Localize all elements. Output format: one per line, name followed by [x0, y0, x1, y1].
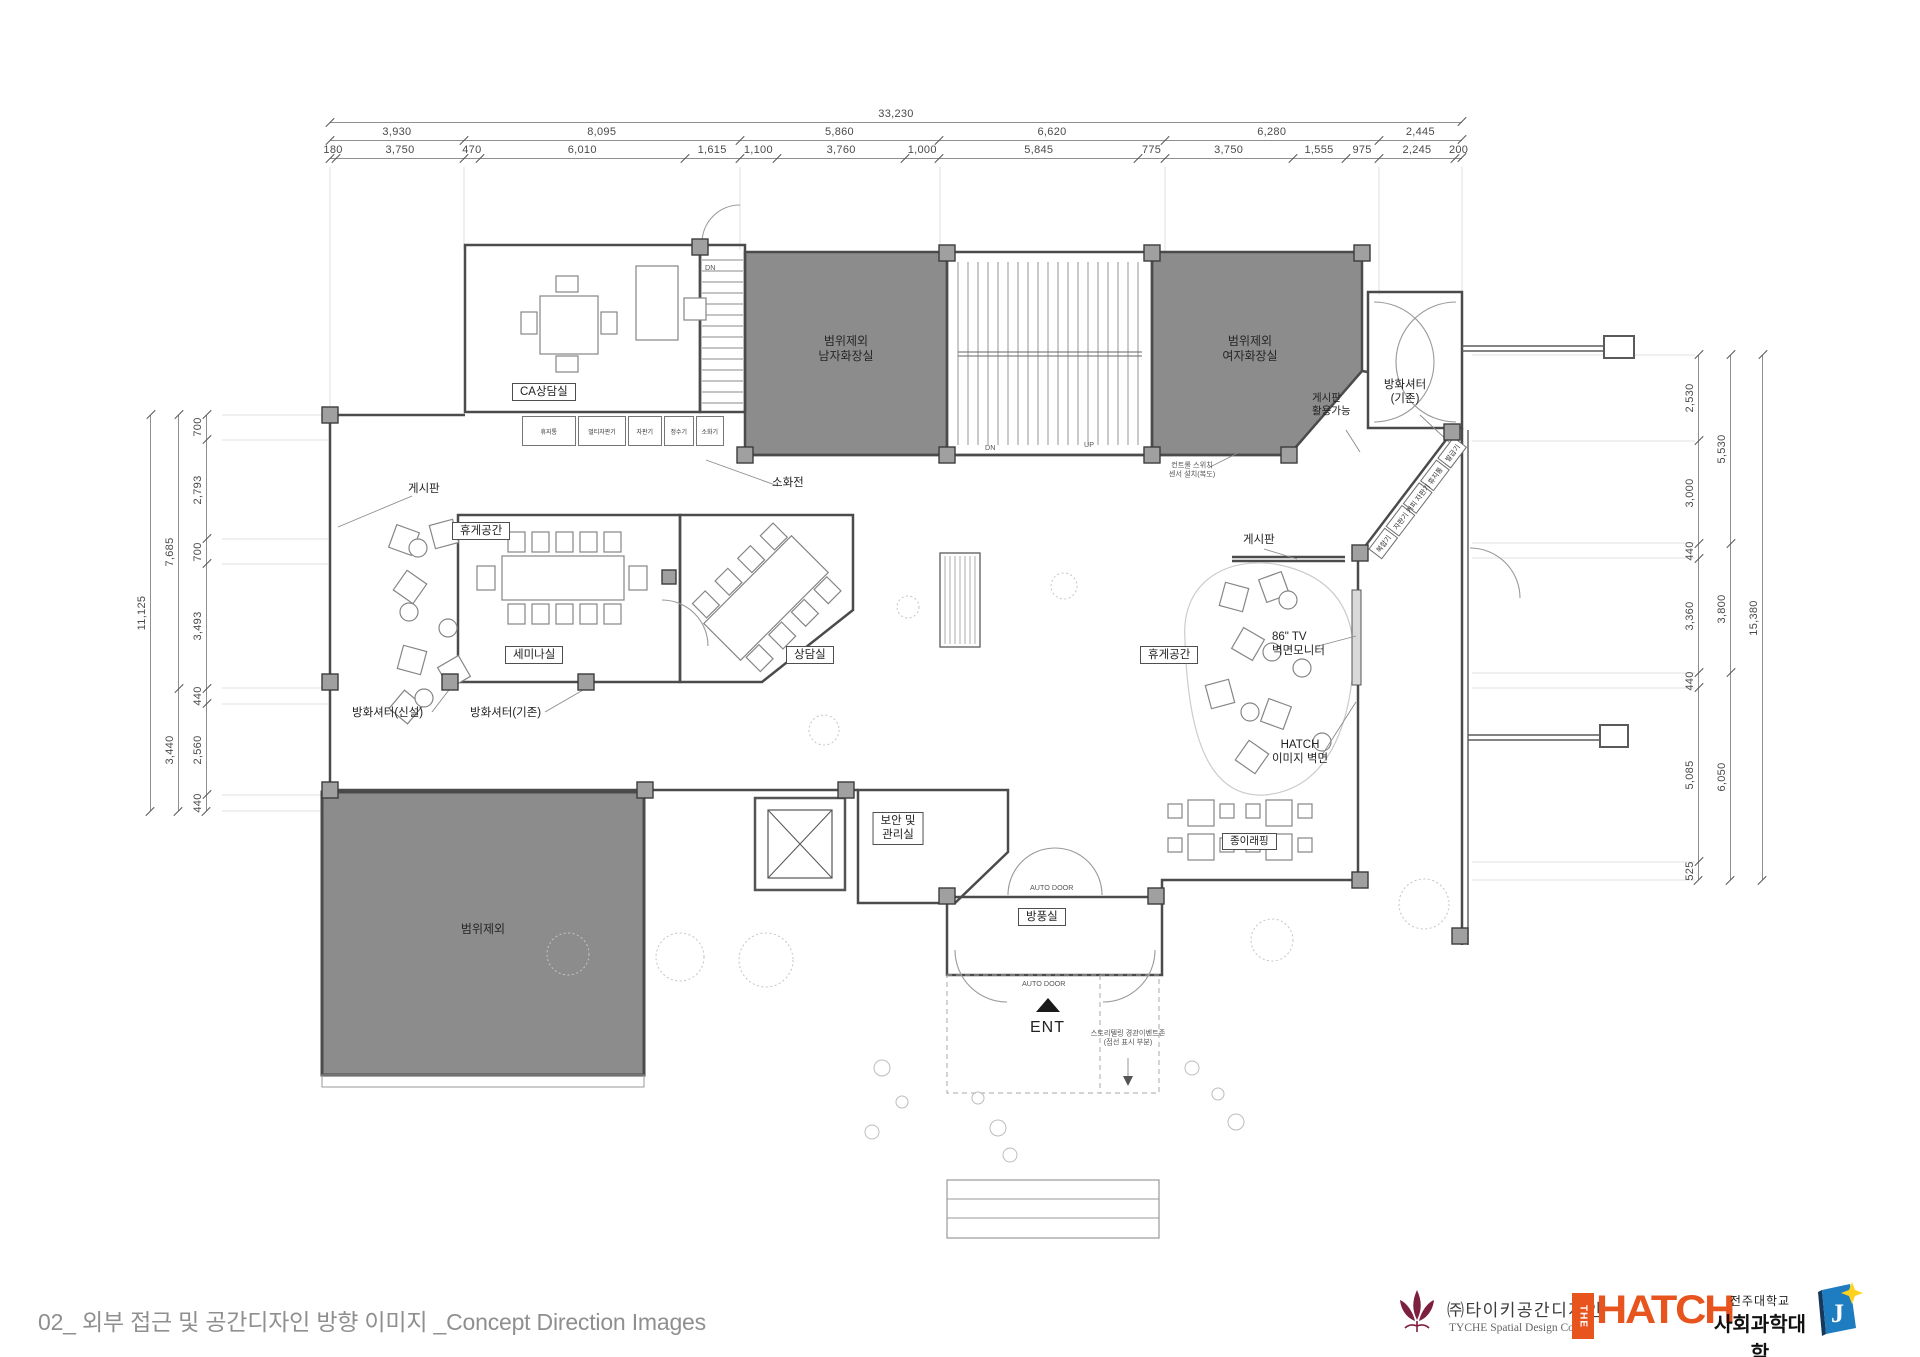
tyche-logo-icon: [1400, 1290, 1434, 1332]
label-control-switch: 컨트롤 스위치 센서 설치(복도): [1169, 462, 1216, 480]
excluded-zones: [322, 252, 1362, 1087]
appliance-box-extinguisher: 소화기: [696, 416, 724, 446]
dimension-value: 3,440: [164, 735, 176, 764]
appliance-label: 정수기: [671, 427, 688, 436]
dimension-segment: 3,800: [1730, 544, 1731, 674]
dimension-value: 5,085: [1684, 761, 1696, 790]
dimension-segment: 3,440: [178, 689, 179, 811]
dimension-value: 6,010: [568, 144, 597, 156]
dimension-value: 7,685: [164, 537, 176, 566]
room-label-excluded-big: 범위제외: [461, 922, 505, 937]
dimension-segment: 5,860: [740, 140, 940, 141]
label-tv-wall: 86" TV 벽면모니터: [1272, 630, 1325, 659]
dim-left-middle: 7,6853,440: [178, 415, 179, 811]
dimension-value: 700: [192, 542, 204, 561]
label-fire-shutter-tr: 방화셔터 (기존): [1384, 378, 1426, 407]
dimension-value: 440: [1684, 671, 1696, 690]
label-hatch-wall: HATCH 이미지 벽면: [1272, 738, 1328, 767]
dimension-value: 3,000: [1684, 478, 1696, 507]
hatched-screen: [940, 553, 980, 647]
hatch-logo-the: THE: [1572, 1293, 1594, 1339]
appliance-box-multivend: 멀티자판기: [578, 416, 626, 446]
dimension-value: 1,555: [1305, 144, 1334, 156]
appliance-box-vending: 자판기: [628, 416, 662, 446]
university-flag-icon: J: [1818, 1282, 1863, 1336]
dimension-value: 3,800: [1716, 594, 1728, 623]
dimension-value: 975: [1352, 144, 1371, 156]
appliance-label: 멀티자판기: [588, 427, 616, 436]
dimension-segment: 3,930: [330, 140, 464, 141]
label-fire-shutter-new: 방화셔터(신설): [352, 706, 423, 720]
dimension-segment: 2,793: [206, 440, 207, 539]
dimension-segment: 700: [206, 415, 207, 440]
dimension-value: 2,560: [192, 735, 204, 764]
dimension-segment: 11,125: [150, 415, 151, 811]
dimension-segment: 2,445: [1379, 140, 1462, 141]
label-bulletin-right: 게시판: [1243, 533, 1275, 547]
elevator: [755, 798, 845, 890]
dimension-value: 440: [192, 687, 204, 706]
dimension-value: 3,750: [1214, 144, 1243, 156]
svg-text:J: J: [1831, 1299, 1844, 1328]
dimension-segment: 3,000: [1698, 441, 1699, 543]
dimension-value: 525: [1684, 861, 1696, 880]
dimension-segment: 2,245: [1379, 158, 1455, 159]
dim-right-middle: 5,5303,8006,050: [1730, 355, 1731, 880]
dimension-segment: 1,100: [740, 158, 777, 159]
dimension-segment: 5,845: [939, 158, 1138, 159]
dimension-segment: 5,085: [1698, 688, 1699, 862]
dimension-segment: 3,360: [1698, 559, 1699, 674]
dimension-segment: 5,530: [1730, 355, 1731, 544]
kiosk-row: 복합기 자판기 커피 자판기 휴지통 발급기: [1369, 437, 1466, 558]
floor-plan-drawing: 복합기 자판기 커피 자판기 휴지통 발급기: [0, 0, 1920, 1357]
dimension-segment: 6,280: [1165, 140, 1379, 141]
dimension-value: 3,493: [192, 612, 204, 641]
dimension-value: 700: [192, 418, 204, 437]
tyche-name-en: TYCHE Spatial Design Corp.: [1449, 1322, 1586, 1334]
university-name-large: 사회과학대학: [1705, 1308, 1815, 1357]
dimension-value: 440: [1684, 542, 1696, 561]
dimension-segment: 3,750: [336, 158, 464, 159]
label-dn-small-stair: DN: [705, 264, 715, 273]
dimension-segment: 3,493: [206, 564, 207, 688]
dimension-value: 3,930: [382, 126, 411, 138]
dimension-value: 2,245: [1402, 144, 1431, 156]
room-label-ca: CA상담실: [512, 383, 576, 401]
entrance-porch: [947, 975, 1159, 1238]
appliance-box-trash: 휴지통: [522, 416, 576, 446]
dimension-segment: 1,615: [685, 158, 740, 159]
room-label-windbreak: 방풍실: [1018, 908, 1066, 926]
label-bulletin-topright: 게시판 활용가능: [1312, 392, 1351, 418]
dimension-value: 470: [462, 144, 481, 156]
label-fire-shutter-old: 방화셔터(기존): [470, 706, 541, 720]
dimension-value: 5,530: [1716, 435, 1728, 464]
dimension-value: 1,615: [698, 144, 727, 156]
dimension-segment: 700: [206, 539, 207, 564]
dimension-value: 8,095: [587, 126, 616, 138]
shrub-dots: [865, 1060, 1244, 1162]
dimension-value: 33,230: [878, 108, 913, 120]
room-label-excluded-men: 범위제외 남자화장실: [818, 334, 873, 364]
dimension-segment: 8,095: [464, 140, 740, 141]
dim-top-row1: 3,9308,0955,8606,6206,2802,445: [330, 140, 1462, 141]
dimension-segment: 3,760: [777, 158, 905, 159]
dimension-value: 440: [192, 794, 204, 813]
label-entry-note: 스토리텔링 경관이벤트존 (점선 표시 부분): [1091, 1030, 1166, 1048]
dimension-segment: 975: [1346, 158, 1379, 159]
note-arrow: [1123, 1076, 1133, 1086]
label-dn-main-stair: DN: [985, 444, 995, 453]
dim-left-outer: 11,125: [150, 415, 151, 811]
dimension-segment: 775: [1138, 158, 1164, 159]
dimension-segment: 15,380: [1762, 355, 1763, 880]
floor-plan-sheet: 복합기 자판기 커피 자판기 휴지통 발급기: [0, 0, 1920, 1357]
room-label-excluded-women: 범위제외 여자화장실: [1222, 334, 1277, 364]
appliance-label: 휴지통: [541, 427, 558, 436]
label-hydrant: 소화전: [772, 476, 804, 490]
dimension-value: 2,793: [192, 475, 204, 504]
label-entry: ENT: [1030, 1018, 1065, 1038]
label-auto-door-top: AUTO DOOR: [1030, 884, 1073, 893]
dimension-value: 2,445: [1406, 126, 1435, 138]
dimension-segment: 33,230: [330, 122, 1462, 123]
dimension-value: 3,750: [385, 144, 414, 156]
room-label-rest-left: 휴게공간: [452, 522, 510, 540]
dimension-segment: 1,555: [1293, 158, 1346, 159]
appliance-label: 소화기: [702, 427, 719, 436]
dimension-value: 11,125: [136, 596, 148, 631]
room-label-cafe: 종이래핑: [1222, 833, 1277, 850]
railings: [1462, 336, 1634, 945]
dimension-value: 775: [1142, 144, 1161, 156]
dim-left-inner: 7002,7937003,4934402,560440: [206, 415, 207, 811]
dimension-value: 6,620: [1038, 126, 1067, 138]
label-bulletin-left: 게시판: [408, 482, 440, 496]
dimension-value: 6,050: [1716, 762, 1728, 791]
entry-arrow: [1036, 998, 1060, 1012]
room-label-seminar: 세미나실: [505, 646, 563, 664]
dimension-value: 1,100: [744, 144, 773, 156]
dimension-value: 3,360: [1684, 602, 1696, 631]
dimension-segment: 6,010: [480, 158, 685, 159]
dim-top-total: 33,230: [330, 122, 1462, 123]
room-label-rest-right: 휴게공간: [1140, 646, 1198, 664]
dim-top-row2: 1803,7504706,0101,6151,1003,7601,0005,84…: [330, 158, 1462, 159]
university-name-small: 전주대학교: [1712, 1292, 1808, 1309]
label-auto-door-bottom: AUTO DOOR: [1022, 980, 1065, 989]
dimension-segment: 2,560: [206, 704, 207, 795]
dimension-segment: 6,050: [1730, 673, 1731, 880]
room-label-counsel: 상담실: [786, 646, 834, 664]
appliance-box-water: 정수기: [664, 416, 694, 446]
dimension-segment: 7,685: [178, 415, 179, 689]
tv-wall-monitor: [1352, 590, 1361, 685]
dimension-value: 15,380: [1748, 600, 1760, 635]
dimension-segment: 3,750: [1165, 158, 1293, 159]
dimension-value: 3,760: [827, 144, 856, 156]
dim-right-inner: 2,5303,0004403,3604405,085525: [1698, 355, 1699, 880]
dimension-value: 5,845: [1024, 144, 1053, 156]
dimension-value: 2,530: [1684, 384, 1696, 413]
dimension-segment: 6,620: [939, 140, 1165, 141]
room-label-security: 보안 및 관리실: [873, 812, 924, 845]
dim-right-outer: 15,380: [1762, 355, 1763, 880]
label-up-main-stair: UP: [1084, 441, 1094, 450]
page-title: 02_ 외부 접근 및 공간디자인 방향 이미지 _Concept Direct…: [38, 1303, 706, 1337]
dimension-value: 5,860: [825, 126, 854, 138]
dimension-segment: 1,000: [905, 158, 939, 159]
dimension-value: 1,000: [908, 144, 937, 156]
dimension-value: 6,280: [1257, 126, 1286, 138]
dimension-segment: 2,530: [1698, 355, 1699, 441]
appliance-label: 자판기: [637, 427, 654, 436]
